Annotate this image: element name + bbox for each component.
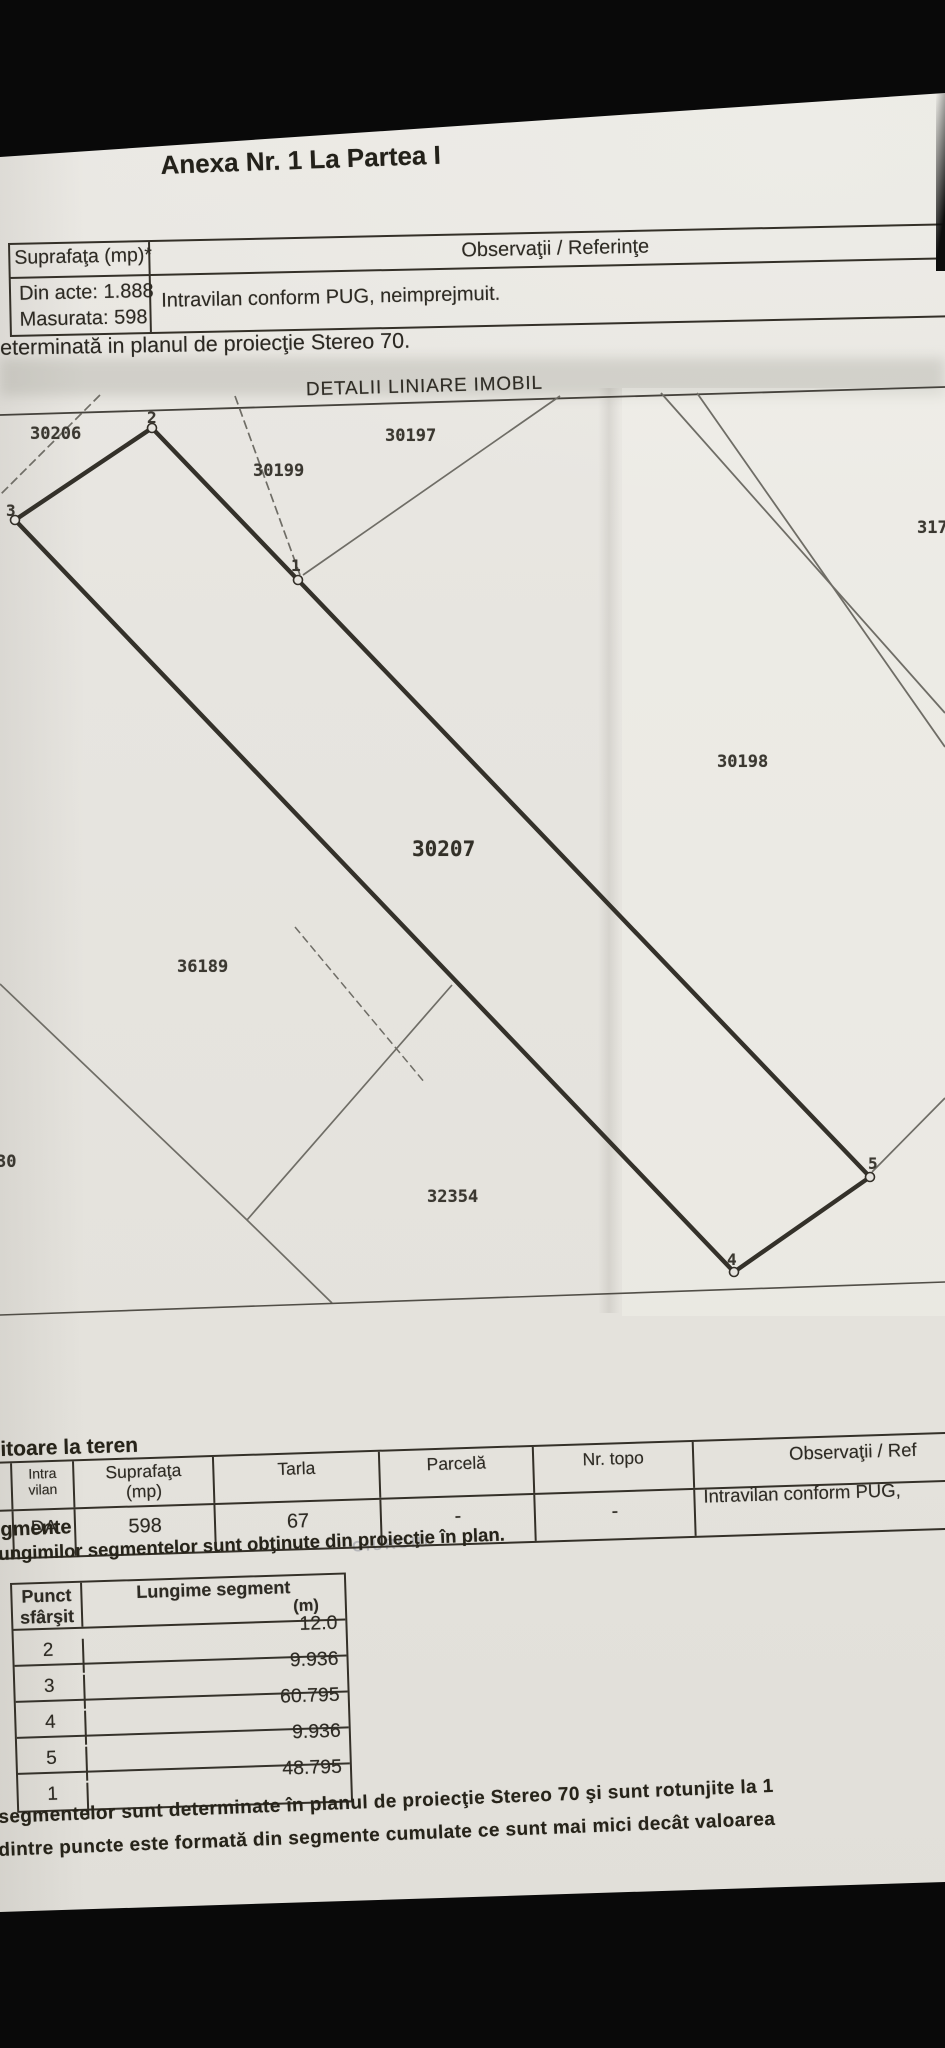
vertex-label-2: 2	[147, 408, 157, 427]
surface-values-cell: Din acte: 1.888 Masurata: 598	[9, 276, 152, 335]
map-label-30207: 30207	[412, 837, 475, 861]
map-label-32354: 32354	[427, 1187, 478, 1207]
segment-lungime: 12.0	[83, 1611, 346, 1653]
map-label-30198: 30198	[717, 752, 768, 772]
photo-dark-right-edge	[936, 93, 945, 271]
teren-header-parcela: Parcelă	[380, 1447, 535, 1498]
segment-lungime: 9.936	[84, 1647, 347, 1689]
vertex-label-4: 4	[727, 1250, 737, 1269]
bottom-boundary-line	[0, 1282, 945, 1315]
boundary-line-30197-30198	[303, 396, 560, 575]
boundary-line-36189-32354	[0, 984, 332, 1303]
boundary-line-30206	[0, 395, 100, 495]
teren-data-nrtopo: -	[535, 1490, 696, 1541]
vertex-label-3: 3	[6, 501, 16, 520]
map-label-36189: 36189	[177, 957, 228, 977]
segment-punct: 3	[15, 1675, 86, 1711]
map-label-317: 317	[917, 518, 945, 538]
map-label-30197: 30197	[385, 426, 436, 446]
segments-table: Punct sfârşit Lungime segment (m) 2 12.0…	[10, 1572, 353, 1812]
vertex-marker-1	[294, 576, 303, 585]
segment-lungime: 9.936	[87, 1719, 350, 1761]
segment-punct: 2	[14, 1639, 85, 1675]
teren-header-suprafata: Suprafaţa (mp)	[74, 1457, 215, 1507]
segments-header-punct: Punct sfârşit	[12, 1583, 83, 1629]
surface-table: Suprafaţa (mp)* Observaţii / Referinţe D…	[8, 223, 945, 337]
teren-header-suprafata-text: Suprafaţa (mp)	[97, 1460, 190, 1503]
segment-punct: 4	[16, 1711, 87, 1747]
scanned-cadastral-document: Anexa Nr. 1 La Partea I Suprafaţa (mp)* …	[0, 0, 945, 2048]
surface-header-cell: Suprafaţa (mp)*	[8, 242, 151, 277]
map-label-30206: 30206	[30, 424, 81, 444]
vertex-label-1: 1	[291, 556, 301, 575]
boundary-line-road-b	[697, 393, 945, 747]
masurata-value: Masurata: 598	[19, 304, 146, 333]
vertex-label-5: 5	[868, 1154, 878, 1173]
boundary-line-from-vertex5	[872, 1098, 945, 1172]
teren-header-nrtopo: Nr. topo	[534, 1442, 695, 1493]
boundary-line-dashed-inner	[295, 927, 425, 1083]
vertex-marker-5	[866, 1173, 875, 1182]
boundary-line-32354-corner	[247, 985, 452, 1220]
map-label-30: 30	[0, 1152, 16, 1172]
segments-heading-fragment: gmente	[0, 1516, 72, 1542]
segment-lungime: 60.795	[85, 1683, 348, 1725]
din-acte-value: Din acte: 1.888	[19, 278, 146, 307]
segment-lungime: 48.795	[88, 1755, 351, 1799]
segment-punct: 5	[17, 1747, 88, 1783]
teren-header-tarla: Tarla	[214, 1452, 381, 1503]
teren-header-intravilan: Intra vilan	[12, 1461, 75, 1509]
map-label-30199: 30199	[253, 461, 304, 481]
boundary-line-road-a	[661, 393, 945, 713]
teren-data-observatii: Intravilan conform PUG,	[695, 1475, 945, 1529]
